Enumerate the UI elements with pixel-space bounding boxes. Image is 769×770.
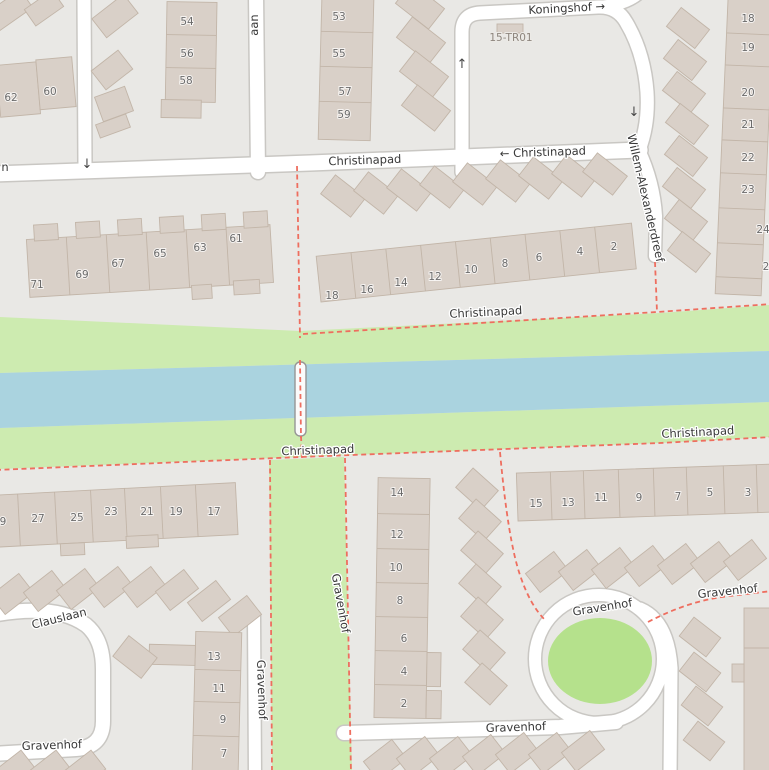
house-number: 59 xyxy=(337,109,350,121)
house-number: 9 xyxy=(220,714,227,726)
house-number: 9 xyxy=(636,492,643,504)
house-number: 12 xyxy=(428,271,441,283)
house-number: 56 xyxy=(180,48,194,60)
house-number: 14 xyxy=(394,277,408,289)
street-label: Gravenhof xyxy=(22,737,84,753)
house-number: 23 xyxy=(741,184,754,196)
oneway-arrow: ↓ xyxy=(82,157,93,172)
building-62-60 xyxy=(0,57,76,117)
house-number: 20 xyxy=(741,87,754,99)
house-number: 7 xyxy=(221,748,228,760)
house-number: 55 xyxy=(332,48,345,60)
house-number: 19 xyxy=(741,42,754,54)
house-number: 13 xyxy=(561,497,574,509)
house-number: 67 xyxy=(111,258,124,270)
street-label: Gravenhof xyxy=(486,719,548,735)
house-number: 4 xyxy=(401,666,408,678)
house-number: 21 xyxy=(140,506,153,518)
house-number: 8 xyxy=(502,258,509,270)
house-number: 65 xyxy=(153,248,166,260)
house-number: 22 xyxy=(741,152,754,164)
house-number: 17 xyxy=(207,506,220,518)
building-bottom-right xyxy=(732,608,769,770)
house-number: 11 xyxy=(212,683,225,695)
house-number: 11 xyxy=(594,492,607,504)
house-number: 62 xyxy=(4,92,17,104)
house-number: 58 xyxy=(179,75,192,87)
house-number: 18 xyxy=(325,290,338,302)
building-row-15-3 xyxy=(516,464,769,521)
house-number: 24 xyxy=(756,224,769,236)
house-number: 7 xyxy=(675,491,682,503)
house-number: 25 xyxy=(70,512,83,524)
house-number: 4 xyxy=(577,246,584,258)
street-label: Christinapad xyxy=(449,303,523,321)
house-number: 6 xyxy=(401,633,408,645)
house-number: 21 xyxy=(741,119,754,131)
street-label: Christinapad xyxy=(328,152,401,169)
street-label: aan xyxy=(247,14,261,35)
house-number: 2 xyxy=(401,698,408,710)
house-number: 23 xyxy=(104,506,117,518)
street-label: Gravenhof xyxy=(697,581,759,601)
footpath-north-vertical xyxy=(297,166,300,338)
house-number: 10 xyxy=(464,264,477,276)
house-number: 27 xyxy=(31,513,44,525)
building-col-13-7 xyxy=(146,630,242,770)
house-number: 13 xyxy=(207,651,220,663)
house-number: 9 xyxy=(0,516,6,528)
oneway-arrow: ↑ xyxy=(457,57,468,72)
map-canvas[interactable]: Koningshof →15-TR01Christinapad← Christi… xyxy=(0,0,769,770)
building-col-14-2 xyxy=(374,478,445,719)
street-label: Christinapad xyxy=(281,442,354,459)
house-number: 19 xyxy=(169,506,182,518)
street-label: Gravenhof xyxy=(254,660,270,722)
house-number: 3 xyxy=(745,487,752,499)
house-number: 5 xyxy=(707,487,714,499)
house-number: 8 xyxy=(397,595,404,607)
house-number: 10 xyxy=(389,562,402,574)
street-label: n xyxy=(1,160,8,174)
house-number: 6 xyxy=(536,252,543,264)
green-circle-gravenhof xyxy=(548,618,652,704)
building-71-61 xyxy=(26,211,275,310)
house-number: 53 xyxy=(332,11,345,23)
ref-label-15-tr01: 15-TR01 xyxy=(489,32,532,44)
house-number: 57 xyxy=(338,86,351,98)
house-number: 2 xyxy=(763,261,769,273)
map-svg: Koningshof →15-TR01Christinapad← Christi… xyxy=(0,0,769,770)
house-number: 63 xyxy=(193,242,206,254)
house-number: 54 xyxy=(180,16,194,28)
footpath-wa-connector xyxy=(655,262,657,312)
house-number: 16 xyxy=(360,284,374,296)
house-number: 2 xyxy=(611,241,618,253)
house-number: 60 xyxy=(43,86,56,98)
house-number: 61 xyxy=(229,233,242,245)
house-number: 69 xyxy=(75,269,88,281)
house-number: 15 xyxy=(529,498,542,510)
oneway-arrow: ↓ xyxy=(629,105,640,120)
house-number: 71 xyxy=(30,279,43,291)
house-number: 14 xyxy=(390,487,404,499)
house-number: 12 xyxy=(390,529,403,541)
house-number: 18 xyxy=(741,13,754,25)
